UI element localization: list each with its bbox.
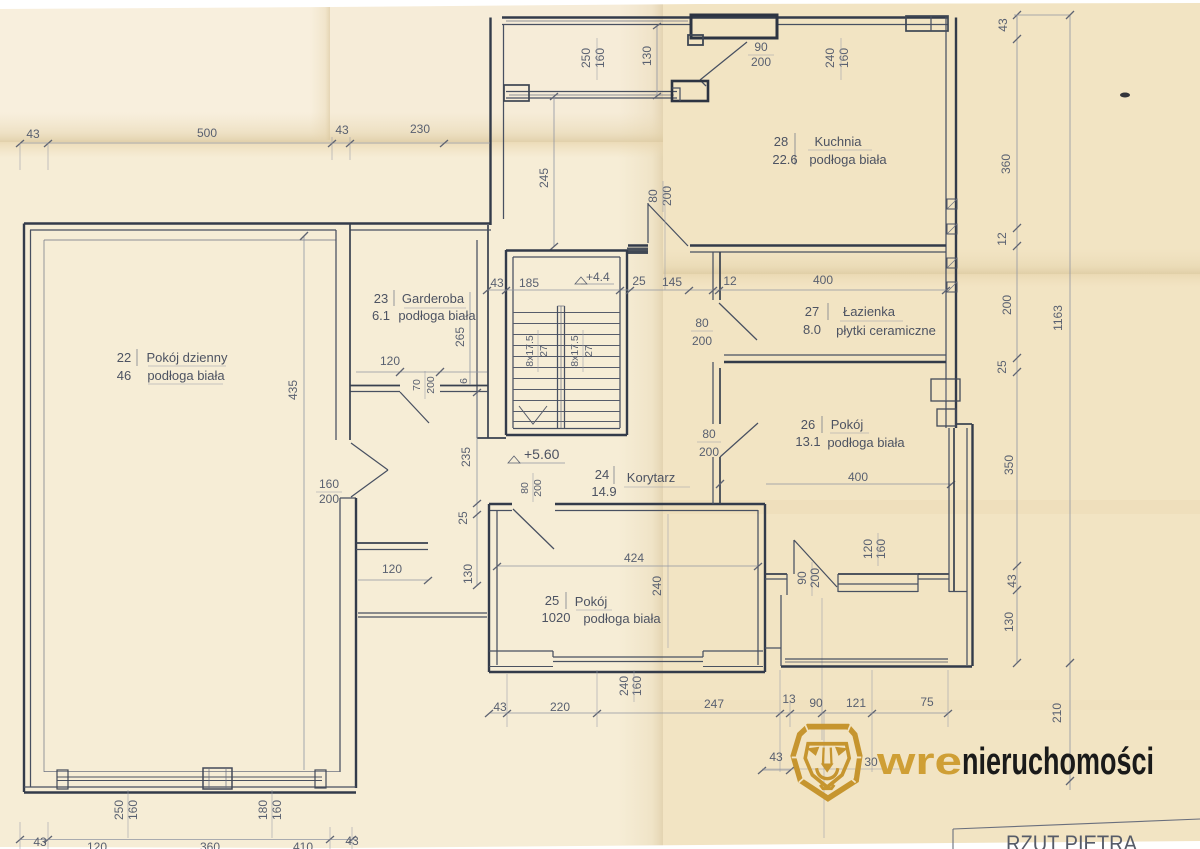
- svg-text:120: 120: [380, 354, 400, 368]
- svg-text:46: 46: [117, 368, 131, 383]
- svg-text:75: 75: [920, 695, 934, 709]
- svg-text:26: 26: [801, 417, 815, 432]
- svg-text:360: 360: [200, 840, 220, 849]
- svg-text:27: 27: [538, 345, 550, 357]
- svg-text:Garderoba: Garderoba: [402, 291, 465, 306]
- svg-text:43: 43: [769, 750, 783, 764]
- svg-text:230: 230: [410, 122, 430, 136]
- svg-text:120: 120: [382, 562, 402, 576]
- svg-text:22: 22: [117, 350, 131, 365]
- svg-text:23: 23: [374, 291, 388, 306]
- svg-text:80: 80: [702, 427, 716, 441]
- svg-text:43: 43: [493, 700, 507, 714]
- svg-text:8x17.5: 8x17.5: [569, 335, 581, 367]
- svg-text:12: 12: [995, 232, 1009, 246]
- svg-text:160: 160: [837, 48, 851, 68]
- svg-text:Pokój dzienny: Pokój dzienny: [147, 350, 228, 365]
- svg-text:200: 200: [532, 479, 544, 497]
- svg-text:13.1: 13.1: [795, 434, 820, 449]
- svg-text:265: 265: [453, 327, 467, 347]
- svg-text:43: 43: [26, 127, 40, 141]
- svg-text:43: 43: [996, 18, 1010, 32]
- svg-text:podłoga biała: podłoga biała: [398, 308, 476, 323]
- svg-text:235: 235: [459, 447, 473, 467]
- svg-text:200: 200: [699, 445, 719, 459]
- svg-text:80: 80: [646, 189, 660, 203]
- svg-text:245: 245: [537, 168, 551, 188]
- svg-text:160: 160: [874, 539, 888, 559]
- svg-text:130: 130: [461, 564, 475, 584]
- svg-text:Kuchnia: Kuchnia: [815, 134, 863, 149]
- svg-text:wre: wre: [876, 741, 962, 783]
- svg-text:200: 200: [1000, 295, 1014, 315]
- svg-text:400: 400: [848, 470, 868, 484]
- svg-text:350: 350: [1002, 455, 1016, 475]
- svg-text:145: 145: [662, 275, 682, 289]
- svg-text:240: 240: [650, 576, 664, 596]
- svg-text:120: 120: [87, 840, 107, 849]
- svg-text:247: 247: [704, 697, 724, 711]
- svg-text:210: 210: [1050, 703, 1064, 723]
- svg-text:90: 90: [809, 696, 823, 710]
- svg-text:220: 220: [550, 700, 570, 714]
- svg-text:185: 185: [519, 276, 539, 290]
- svg-text:250: 250: [112, 800, 126, 820]
- svg-text:6: 6: [458, 378, 470, 384]
- svg-text:Korytarz: Korytarz: [627, 470, 675, 485]
- svg-text:160: 160: [630, 676, 644, 696]
- svg-text:240: 240: [823, 48, 837, 68]
- svg-text:400: 400: [813, 273, 833, 287]
- svg-text:120: 120: [861, 539, 875, 559]
- svg-text:43: 43: [33, 835, 47, 849]
- svg-text:Łazienka: Łazienka: [843, 304, 896, 319]
- svg-text:80: 80: [519, 482, 531, 494]
- svg-text:360: 360: [999, 154, 1013, 174]
- svg-text:25: 25: [995, 360, 1009, 374]
- svg-text:8.0: 8.0: [803, 322, 821, 337]
- svg-text:130: 130: [640, 46, 654, 66]
- svg-text:Pokój: Pokój: [575, 594, 608, 609]
- svg-text:25: 25: [632, 274, 646, 288]
- svg-text:43: 43: [490, 276, 504, 290]
- svg-text:27: 27: [805, 304, 819, 319]
- svg-text:podłoga biała: podłoga biała: [583, 611, 661, 626]
- svg-text:200: 200: [660, 186, 674, 206]
- svg-text:+4.4: +4.4: [586, 270, 610, 284]
- svg-text:200: 200: [319, 492, 339, 506]
- svg-text:200: 200: [692, 334, 712, 348]
- svg-text:90: 90: [754, 40, 768, 54]
- svg-text:200: 200: [751, 55, 771, 69]
- svg-text:podłoga biała: podłoga biała: [809, 152, 887, 167]
- svg-text:1163: 1163: [1051, 305, 1065, 331]
- svg-text:22.6: 22.6: [772, 152, 797, 167]
- svg-text:podłoga biała: podłoga biała: [827, 435, 905, 450]
- svg-text:200: 200: [808, 568, 822, 588]
- svg-text:160: 160: [319, 477, 339, 491]
- svg-text:130: 130: [1002, 612, 1016, 632]
- svg-text:24: 24: [595, 467, 609, 482]
- svg-text:25: 25: [545, 593, 559, 608]
- svg-text:160: 160: [126, 800, 140, 820]
- svg-text:28: 28: [774, 134, 788, 149]
- svg-text:płytki ceramiczne: płytki ceramiczne: [836, 323, 936, 338]
- svg-text:8x17.5: 8x17.5: [524, 335, 536, 367]
- svg-text:30: 30: [864, 755, 878, 769]
- svg-text:500: 500: [197, 126, 217, 140]
- svg-text:435: 435: [286, 380, 300, 400]
- svg-text:43: 43: [1005, 574, 1019, 588]
- svg-text:13: 13: [782, 692, 796, 706]
- svg-text:6.1: 6.1: [372, 308, 390, 323]
- svg-text:+5.60: +5.60: [524, 446, 560, 462]
- svg-text:43: 43: [345, 834, 359, 848]
- svg-text:nieruchomości: nieruchomości: [962, 741, 1154, 783]
- svg-text:25: 25: [456, 511, 470, 525]
- svg-text:160: 160: [270, 800, 284, 820]
- svg-text:43: 43: [335, 123, 349, 137]
- svg-text:RZUT PIĘTRA: RZUT PIĘTRA: [1006, 831, 1137, 849]
- svg-text:90: 90: [795, 571, 809, 585]
- svg-text:160: 160: [593, 48, 607, 68]
- svg-text:121: 121: [846, 696, 866, 710]
- svg-text:70: 70: [411, 379, 423, 391]
- svg-text:410: 410: [293, 840, 313, 849]
- svg-text:12: 12: [723, 274, 737, 288]
- svg-text:14.9: 14.9: [591, 484, 616, 499]
- svg-text:250: 250: [579, 48, 593, 68]
- svg-text:180: 180: [256, 800, 270, 820]
- svg-text:424: 424: [624, 551, 644, 565]
- svg-text:80: 80: [695, 316, 709, 330]
- svg-text:27: 27: [583, 345, 595, 357]
- svg-text:240: 240: [617, 676, 631, 696]
- svg-text:1020: 1020: [542, 610, 571, 625]
- svg-text:200: 200: [425, 376, 437, 394]
- svg-text:Pokój: Pokój: [831, 417, 864, 432]
- svg-text:podłoga biała: podłoga biała: [147, 368, 225, 383]
